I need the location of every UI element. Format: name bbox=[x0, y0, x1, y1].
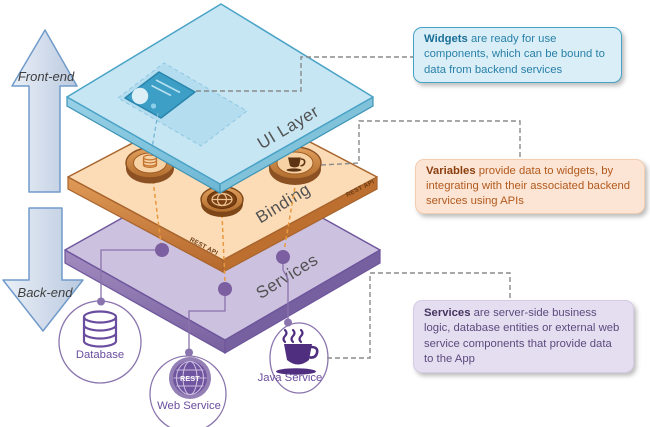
widgets-callout: Widgets are ready for use components, wh… bbox=[413, 27, 622, 83]
widgets-callout-text: Widgets are ready for use components, wh… bbox=[424, 32, 611, 77]
architecture-diagram: Front-end Back-end Services Database bbox=[0, 0, 650, 427]
anchor-dot bbox=[284, 319, 292, 327]
services-callout-text: Services are server-side business logic,… bbox=[424, 306, 623, 367]
database-label: Database bbox=[76, 349, 124, 361]
globe-rest-label: REST bbox=[180, 376, 200, 383]
back-end-label: Back-end bbox=[18, 285, 74, 300]
anchor-dot bbox=[185, 349, 193, 357]
web-service-label: Web Service bbox=[157, 400, 221, 412]
front-end-arrow: Front-end bbox=[12, 30, 77, 192]
java-service: Java Service bbox=[258, 323, 328, 393]
web-service-globe-icon: REST bbox=[169, 357, 211, 399]
web-service: REST Web Service bbox=[150, 356, 226, 427]
variables-callout-text: Variables provide data to widgets, by in… bbox=[426, 164, 634, 209]
services-callout: Services are server-side business logic,… bbox=[413, 300, 634, 373]
services-dot bbox=[276, 250, 290, 264]
variables-callout: Variables provide data to widgets, by in… bbox=[415, 159, 645, 214]
services-callout-lead: Services bbox=[424, 307, 470, 319]
variables-callout-lead: Variables bbox=[426, 165, 476, 177]
services-dot bbox=[218, 282, 232, 296]
java-service-label: Java Service bbox=[258, 372, 323, 384]
database-service: Database bbox=[59, 301, 141, 383]
anchor-dot bbox=[97, 298, 105, 306]
front-end-label: Front-end bbox=[18, 69, 75, 84]
widgets-callout-lead: Widgets bbox=[424, 33, 468, 45]
database-icon bbox=[84, 312, 116, 347]
services-dot bbox=[155, 243, 169, 257]
